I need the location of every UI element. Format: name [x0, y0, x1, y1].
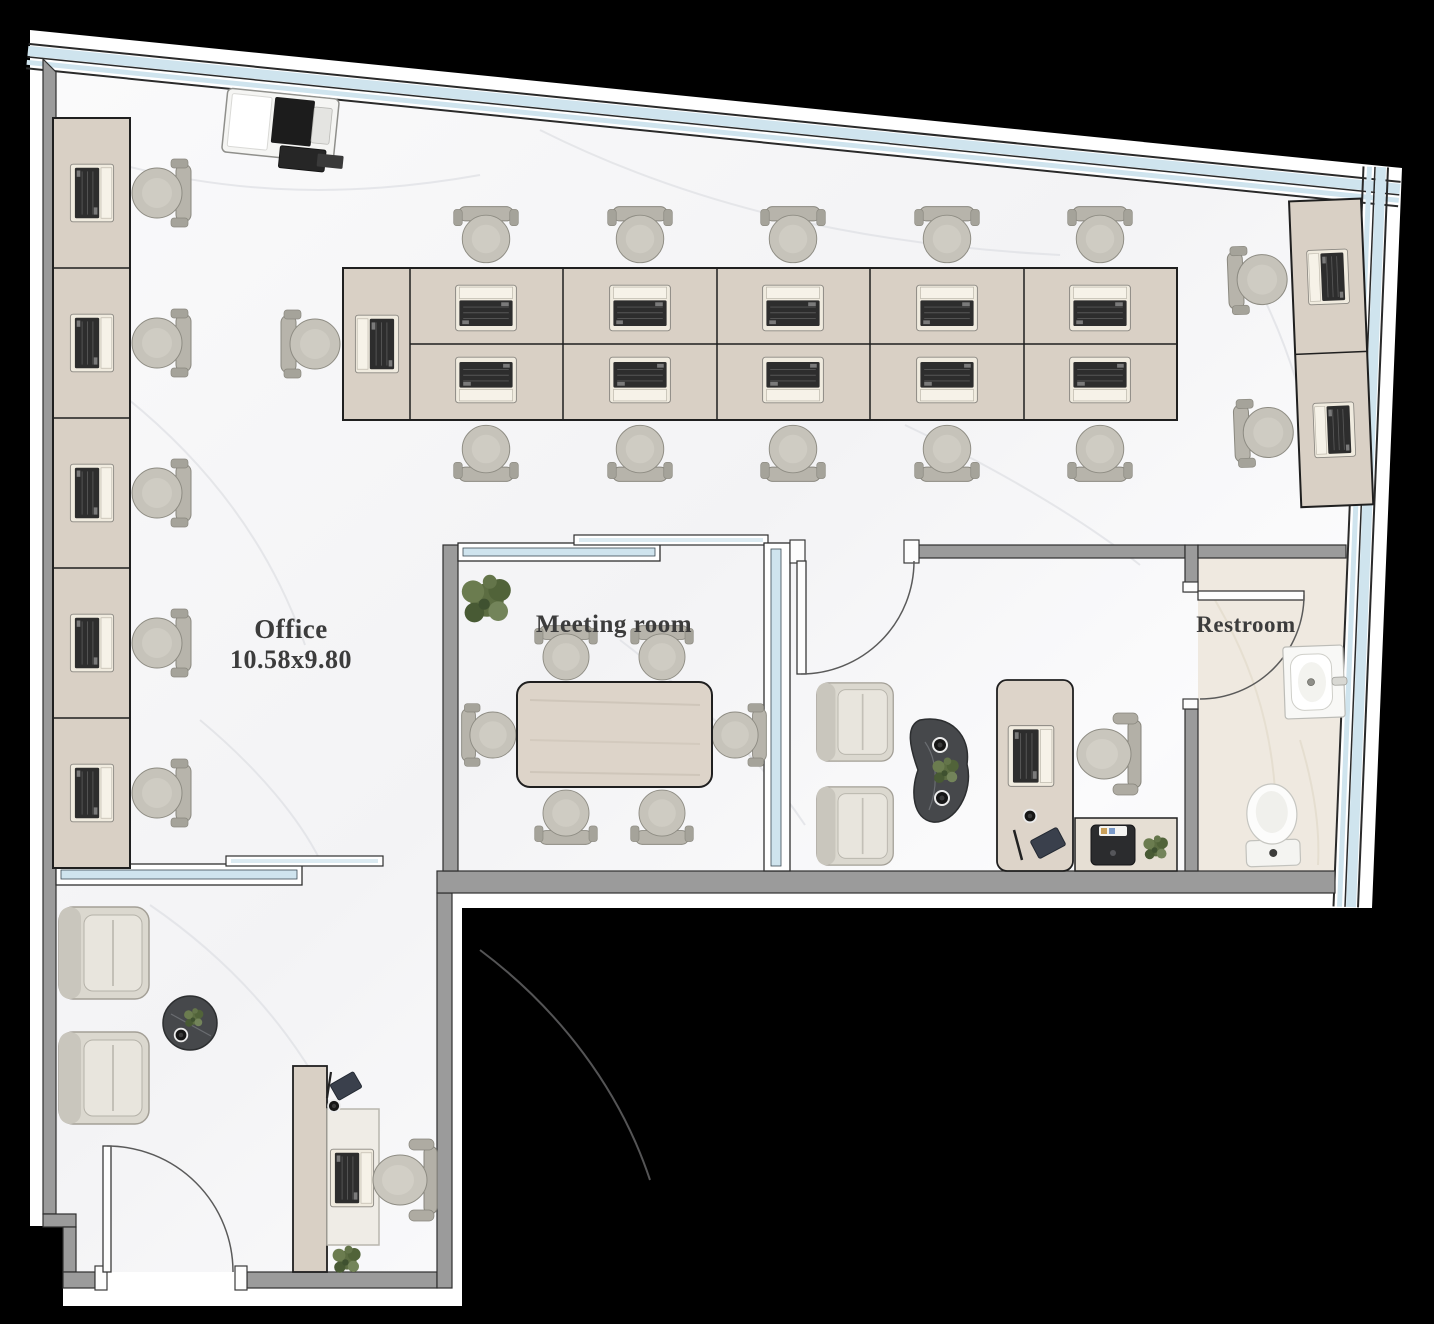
coffee-table	[163, 996, 217, 1050]
sink	[1283, 645, 1348, 719]
meeting-table	[517, 682, 712, 787]
laptop	[1307, 249, 1350, 305]
plant	[462, 575, 511, 623]
meeting-room-right-glass	[764, 543, 790, 871]
cup	[328, 1100, 340, 1112]
manager-office-top-wall	[912, 545, 1185, 558]
meeting-room-left-wall	[443, 545, 458, 871]
plant	[1143, 835, 1168, 859]
laptop	[610, 285, 671, 331]
middle-bottom-wall	[437, 871, 1335, 893]
restroom-left-wall-lower	[1185, 709, 1198, 871]
laptop	[1070, 357, 1131, 403]
plant	[333, 1246, 361, 1273]
laptop	[70, 614, 113, 672]
reception-desk-panel	[293, 1066, 327, 1272]
lounge-bottom-wall-left	[63, 1272, 95, 1288]
office-dimensions: 10.58x9.80	[230, 645, 352, 674]
cup	[935, 791, 949, 805]
laptop	[70, 464, 113, 522]
step-wall-lining-v	[63, 1227, 76, 1272]
laptop	[355, 315, 398, 373]
laptop	[763, 285, 824, 331]
laptop	[70, 164, 113, 222]
restroom-label: Restroom	[1196, 612, 1295, 637]
laptop	[1070, 285, 1131, 331]
lounge-bottom-wall-right	[247, 1272, 437, 1288]
meeting-room-label: Meeting room	[536, 611, 692, 638]
floor-plan-svg: Office 10.58x9.80 Meeting room Restroom	[0, 0, 1434, 1324]
laptop	[610, 357, 671, 403]
laptop	[456, 357, 517, 403]
laptop	[456, 285, 517, 331]
laptop	[763, 357, 824, 403]
toilet	[1244, 783, 1301, 867]
laptop	[330, 1149, 373, 1207]
armchair	[817, 787, 894, 865]
door-leaf	[103, 1146, 111, 1272]
floor-plan-canvas: Office 10.58x9.80 Meeting room Restroom	[0, 0, 1434, 1324]
cup	[1024, 810, 1037, 823]
laptop	[917, 285, 978, 331]
coffee-table	[910, 719, 968, 822]
laptop	[1313, 402, 1356, 458]
plant	[933, 758, 959, 784]
armchair	[59, 907, 149, 999]
door-leaf	[1198, 591, 1304, 600]
laptop	[1008, 726, 1054, 787]
restroom-top-wall	[1198, 545, 1346, 558]
armchair	[59, 1032, 149, 1124]
door-leaf	[797, 561, 806, 674]
armchair	[817, 683, 894, 761]
laptop	[70, 764, 113, 822]
step-wall-lining-h	[43, 1214, 76, 1227]
cup	[933, 738, 947, 752]
laptop	[70, 314, 113, 372]
laptop	[917, 357, 978, 403]
office-label: Office	[254, 614, 327, 644]
printer	[1091, 825, 1135, 865]
lounge-right-wall	[437, 893, 452, 1288]
